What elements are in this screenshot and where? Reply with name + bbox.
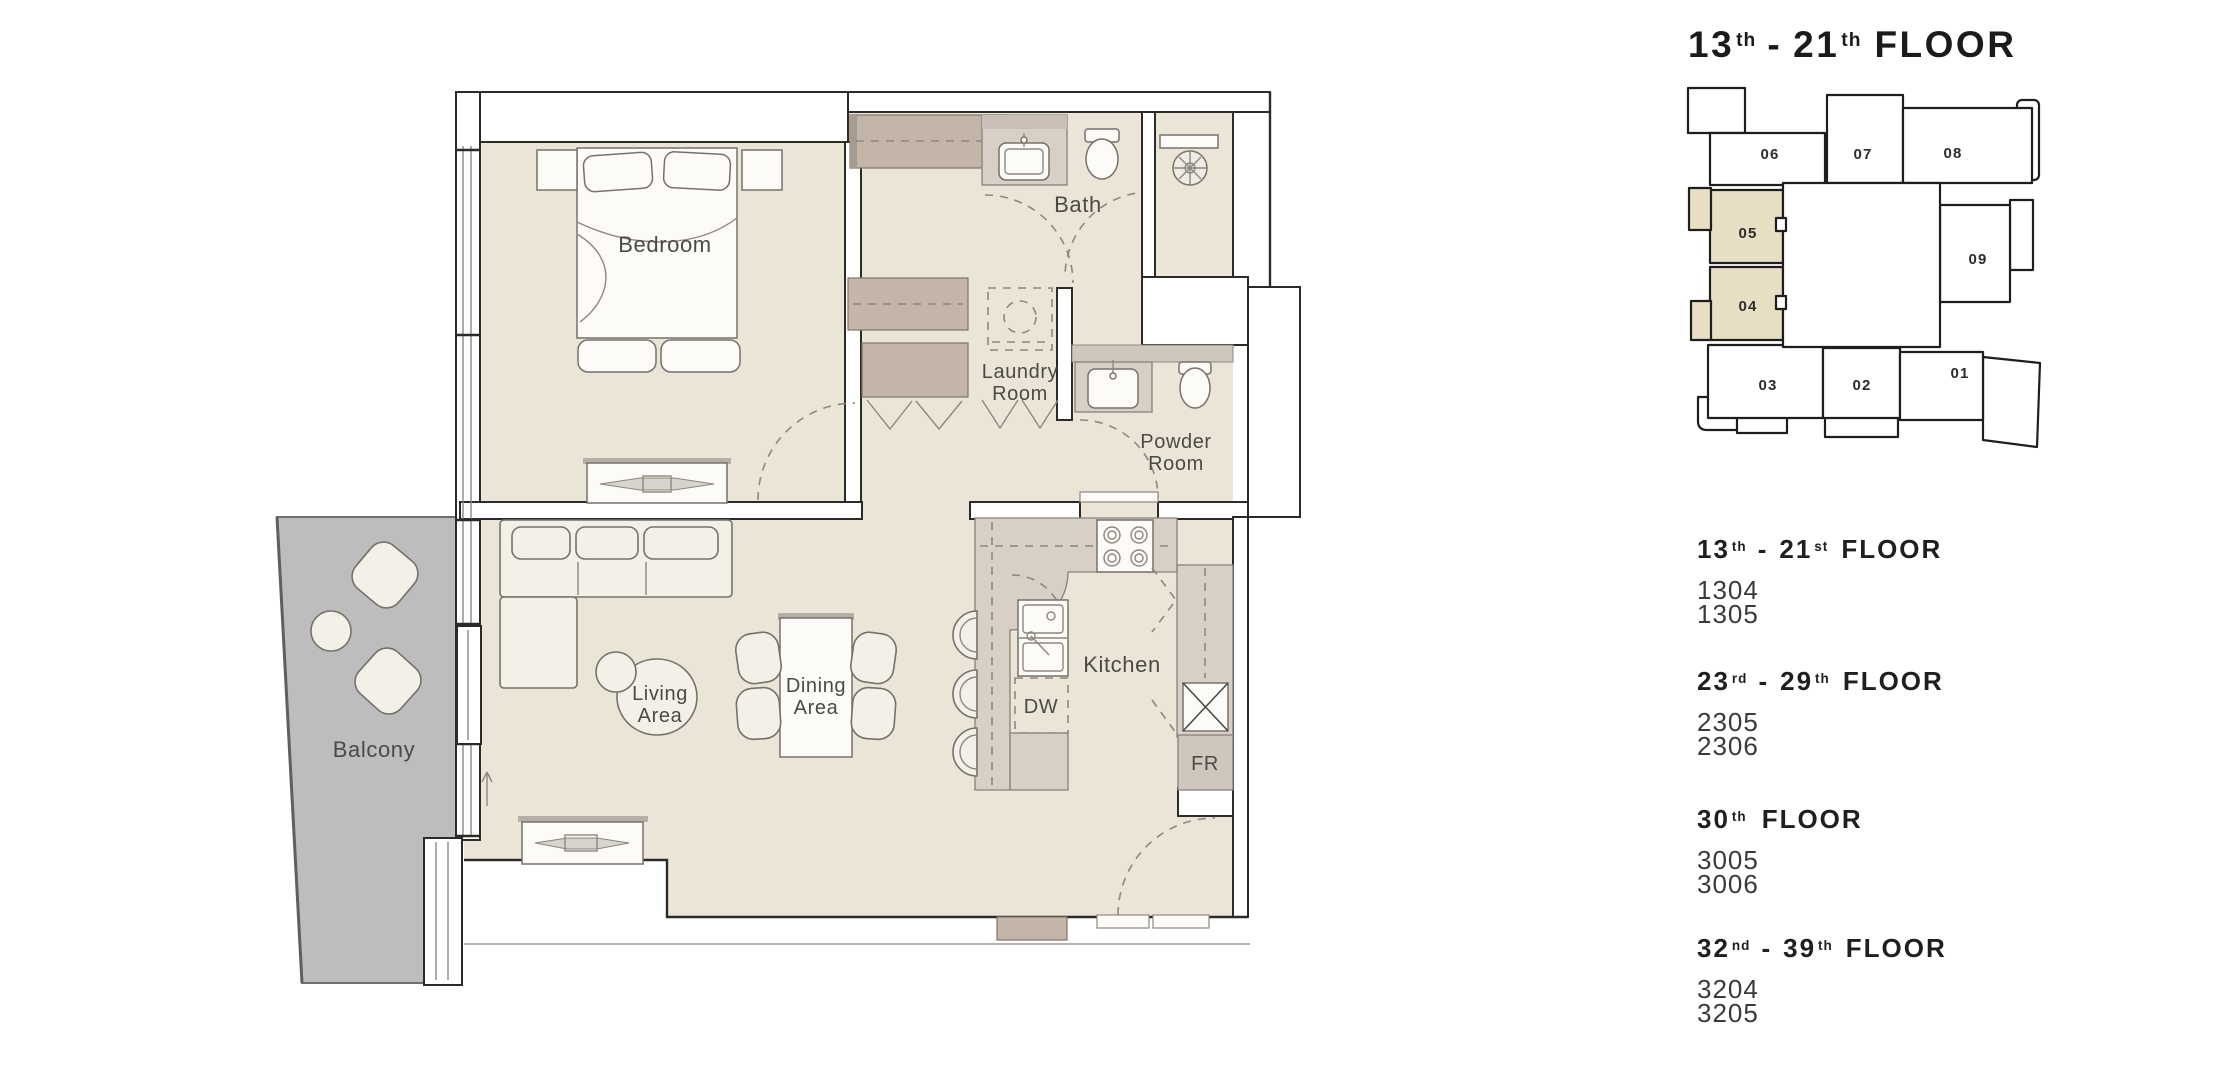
kitchen-label: Kitchen	[1083, 652, 1161, 677]
keyplan-label-05: 05	[1738, 225, 1757, 242]
fridge-label: FR	[1191, 753, 1219, 775]
unit-number: 3205	[1697, 1001, 1947, 1025]
floor-plan: Balcony	[250, 50, 1320, 1000]
door-leaf	[1097, 915, 1149, 928]
door-leaf	[1153, 915, 1209, 928]
dining-area-label: Area	[794, 697, 839, 719]
outdoor-table-icon	[311, 611, 351, 651]
keyplan-label-09: 09	[1968, 251, 1987, 268]
keyplan-label-03: 03	[1758, 377, 1777, 394]
floor-listing-3: 30thFLOOR 3005 3006	[1697, 804, 1863, 896]
bench-icon	[578, 340, 656, 372]
living-area-label: Area	[638, 705, 683, 727]
title-dash: -	[1767, 24, 1782, 65]
floor-listing-1: 13th-21stFLOOR 1304 1305	[1697, 534, 1942, 626]
laundry-label: Room	[992, 383, 1048, 405]
floor-range-heading: 30thFLOOR	[1697, 804, 1863, 835]
chaise-icon	[500, 597, 577, 688]
unit-number: 1305	[1697, 602, 1942, 626]
pillow-icon	[583, 152, 653, 193]
floor-word: FLOOR	[1846, 933, 1947, 963]
floor-ordinal: th	[1818, 938, 1833, 953]
floor-word: FLOOR	[1843, 666, 1944, 696]
floor-word: FLOOR	[1762, 804, 1863, 834]
keyplan-building: 06 07 08 09 05 04 03 02 01	[1688, 88, 2040, 447]
keyplan-unit-01	[1900, 352, 1983, 420]
pillow-icon	[663, 151, 731, 190]
bar-stool-icon	[953, 611, 977, 776]
bath-label: Bath	[1054, 192, 1102, 217]
floor-number: 21	[1779, 534, 1812, 564]
keyplan-label-06: 06	[1760, 146, 1779, 163]
floor-number: 39	[1783, 933, 1816, 963]
floor-listing-2: 23rd-29thFLOOR 2305 2306	[1697, 666, 1944, 758]
ottoman-icon	[596, 652, 636, 692]
floor-range-heading: 32nd-39thFLOOR	[1697, 933, 1947, 964]
range-dash: -	[1758, 534, 1769, 564]
dishwasher-label: DW	[1024, 696, 1059, 718]
floor-ordinal: th	[1732, 809, 1747, 824]
keyplan-unit-07	[1827, 95, 1903, 183]
keyplan-label-04: 04	[1738, 298, 1757, 315]
powder-room-label: Room	[1148, 453, 1204, 475]
range-dash: -	[1758, 666, 1769, 696]
floor-number: 23	[1697, 666, 1730, 696]
living-area-label: Living	[632, 683, 688, 705]
floor-number: 32	[1697, 933, 1730, 963]
floor-ordinal: th	[1815, 671, 1830, 686]
powder-room-label: Powder	[1140, 431, 1211, 453]
balcony-label: Balcony	[333, 737, 415, 762]
floor-listing-4: 32nd-39thFLOOR 3204 3205	[1697, 933, 1947, 1025]
floor-ordinal: th	[1732, 539, 1747, 554]
title-ordinal: th	[1736, 30, 1756, 51]
bench-icon	[661, 340, 740, 372]
nightstand-icon	[742, 150, 782, 190]
nightstand-icon	[537, 150, 577, 190]
unit-number: 3006	[1697, 872, 1863, 896]
floor-range-heading: 13th-21stFLOOR	[1697, 534, 1942, 565]
door-leaf	[1080, 492, 1158, 502]
floor-number: 13	[1697, 534, 1730, 564]
title-ordinal: th	[1841, 30, 1861, 51]
keyplan-label-02: 02	[1852, 377, 1871, 394]
key-plan: 06 07 08 09 05 04 03 02 01	[1685, 78, 2045, 453]
shower-bench-icon	[1160, 135, 1218, 148]
keyplan-label-01: 01	[1950, 365, 1969, 382]
range-dash: -	[1761, 933, 1772, 963]
floor-word: FLOOR	[1841, 534, 1942, 564]
title-word: FLOOR	[1874, 24, 2016, 65]
keyplan-label-07: 07	[1853, 146, 1872, 163]
floor-number: 30	[1697, 804, 1730, 834]
key-plan-title: 13th-21thFLOOR	[1688, 24, 2016, 66]
floor-ordinal: rd	[1732, 671, 1748, 686]
unit-number: 2306	[1697, 734, 1944, 758]
balcony-door	[457, 626, 481, 744]
dining-area-label: Dining	[786, 675, 846, 697]
keyplan-label-08: 08	[1943, 145, 1962, 162]
title-number: 21	[1793, 24, 1839, 65]
keyplan-unit-08	[1903, 108, 2032, 183]
laundry-label: Laundry	[982, 361, 1058, 383]
floor-ordinal: st	[1814, 539, 1828, 554]
title-number: 13	[1688, 24, 1734, 65]
floor-range-heading: 23rd-29thFLOOR	[1697, 666, 1944, 697]
floor-ordinal: nd	[1732, 938, 1751, 953]
bedroom-label: Bedroom	[618, 232, 711, 257]
floor-number: 29	[1780, 666, 1813, 696]
